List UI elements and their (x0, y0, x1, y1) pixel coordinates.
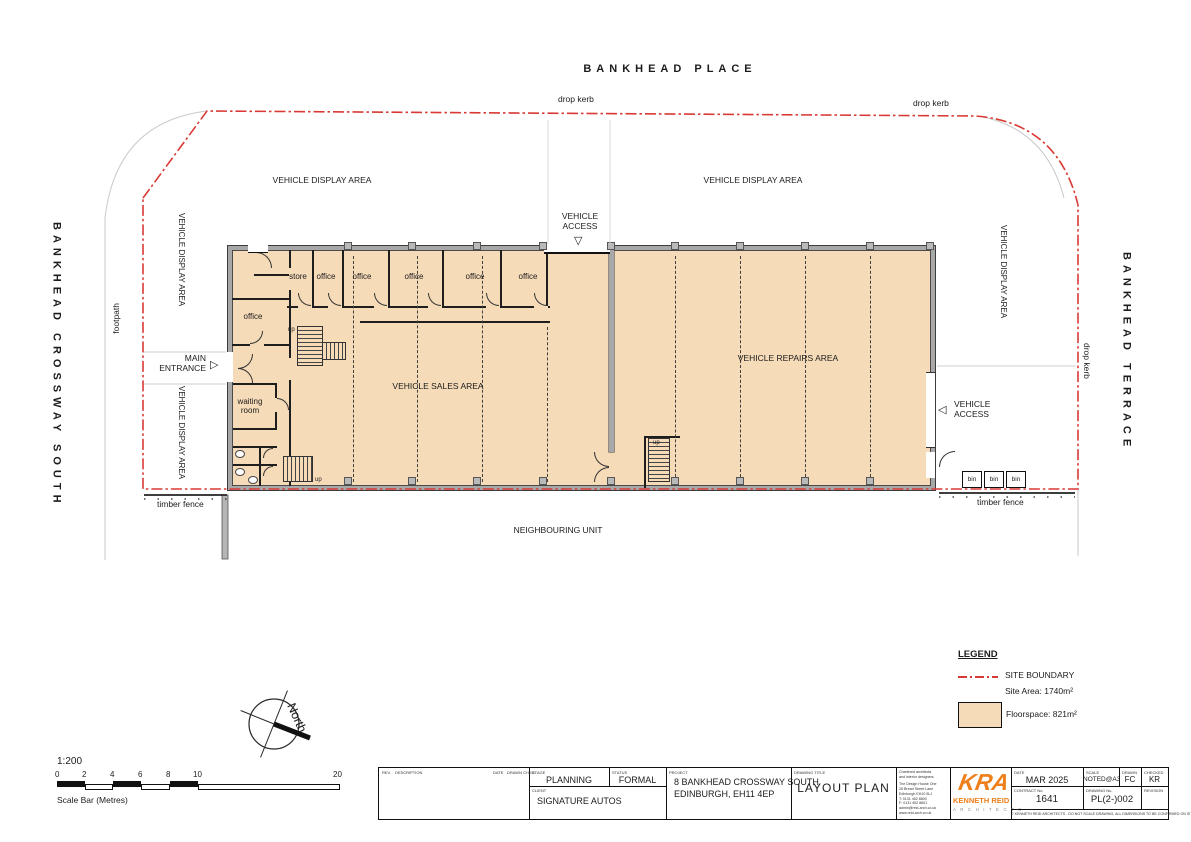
column-marker (926, 242, 934, 250)
legend-site-boundary-label: SITE BOUNDARY (1005, 671, 1074, 681)
contract-label: CONTRACT No. (1014, 788, 1043, 793)
legend-site-area: Site Area: 1740m² (1005, 687, 1073, 697)
door-gap (289, 358, 291, 380)
vehicle-access-label-right: VEHICLE ACCESS (954, 400, 990, 420)
neighbouring-unit-label: NEIGHBOURING UNIT (488, 526, 628, 536)
drawing-title: LAYOUT PLAN (791, 781, 896, 795)
door-arc (277, 398, 289, 410)
door-arc (486, 293, 499, 306)
door-arc (594, 452, 609, 467)
waiting-room-line1: waiting (229, 397, 271, 406)
room-label-office: office (306, 272, 346, 281)
column-marker (607, 242, 615, 250)
checked-value: KR (1141, 775, 1168, 784)
wall-waiting (233, 428, 277, 430)
vehicle-display-area-label: VEHICLE DISPLAY AREA (999, 225, 1008, 318)
scale-tick: 2 (82, 770, 86, 779)
vehicle-repairs-area-label: VEHICLE REPAIRS AREA (714, 354, 862, 364)
wc-fixture (235, 468, 245, 476)
legend-boundary-sample (958, 676, 998, 678)
scale-label: SCALE (1086, 770, 1099, 775)
door-arc (374, 293, 387, 306)
stairs (322, 342, 346, 360)
legend-floorspace: Floorspace: 821m² (1006, 710, 1077, 720)
scale-bar-segment (113, 781, 141, 787)
wall-office-annex (232, 298, 289, 300)
door-gap (534, 306, 548, 308)
scale-bar-segment (170, 781, 198, 787)
vehicle-sales-area-label: VEHICLE SALES AREA (364, 382, 512, 392)
north-compass (230, 682, 324, 768)
drawn-value: FC (1119, 775, 1141, 784)
door-gap (298, 306, 312, 308)
vehicle-display-area-label: VEHICLE DISPLAY AREA (177, 386, 186, 479)
wall-partition (609, 250, 614, 452)
scale-ratio: 1:200 (57, 756, 82, 768)
wall-wc (259, 446, 261, 486)
column-marker (607, 477, 615, 485)
room-label-waiting: waiting room (229, 397, 271, 415)
revision-label: REVISION (1144, 788, 1163, 793)
titleblock-divider (950, 768, 951, 819)
door-arc (238, 354, 253, 369)
stairs-up-label: up (288, 327, 295, 334)
timber-fence-label: timber fence (157, 500, 204, 510)
date-value: MAR 2025 (1011, 775, 1083, 785)
legend-floorspace-swatch (958, 702, 1002, 728)
room-label-office: office (342, 272, 382, 281)
vehicle-access-label-top: VEHICLE ACCESS (545, 212, 615, 232)
wall-stair (644, 436, 646, 488)
column-marker (801, 242, 809, 250)
scale-bar (57, 781, 340, 793)
vehicle-door-opening (926, 372, 935, 448)
drop-kerb-label: drop kerb (913, 99, 949, 109)
scale-bar-segment (141, 784, 170, 790)
north-label: North (284, 701, 309, 735)
bin-store: bin (984, 471, 1004, 488)
lobby-door-opening (248, 244, 268, 253)
scale-tick: 4 (110, 770, 114, 779)
company-line: www.reid-arch.co.uk (899, 811, 937, 816)
project-line2: EDINBURGH, EH11 4EP (674, 789, 774, 799)
scale-bar-segment (198, 784, 340, 790)
kerb-curve-right (978, 116, 1064, 198)
logo-name: KENNETH REID (953, 796, 1009, 805)
titleblock-divider (896, 768, 897, 819)
company-info: Chartered architects and interior design… (899, 770, 937, 815)
column-marker (736, 477, 744, 485)
scale-value: NOTED@A3 (1083, 776, 1119, 783)
bin-store: bin (1006, 471, 1026, 488)
column-marker (539, 242, 547, 250)
scale-tick: 20 (333, 770, 342, 779)
stage-value: PLANNING (529, 775, 609, 785)
door-arc (298, 293, 311, 306)
stairs (297, 326, 323, 366)
door-arc (428, 293, 441, 306)
client-label: CLIENT (532, 788, 546, 793)
wall-divider (500, 250, 502, 306)
wall-waiting (233, 383, 277, 385)
column-marker (736, 242, 744, 250)
stairs-up-label: up (315, 477, 322, 484)
company-line: Chartered architects (899, 770, 937, 775)
wall-office-row (287, 306, 550, 308)
grid-line (675, 256, 676, 482)
copyright-note: © KENNETH REID ARCHITECTS - DO NOT SCALE… (1011, 812, 1168, 817)
drawing-no-label: DRAWING No. (1086, 788, 1113, 793)
scale-tick: 10 (193, 770, 202, 779)
column-marker (671, 242, 679, 250)
scale-tick: 0 (55, 770, 59, 779)
arrow-left-icon: ◁ (938, 405, 946, 416)
door-gap (328, 306, 342, 308)
column-marker (344, 242, 352, 250)
column-marker (801, 477, 809, 485)
grid-line (547, 327, 548, 482)
stairs-up-label: up (653, 440, 660, 447)
drop-kerb-label: drop kerb (558, 95, 594, 105)
vehicle-display-area-label: VEHICLE DISPLAY AREA (685, 176, 821, 186)
grid-line (805, 256, 806, 482)
footpath-label: footpath (112, 303, 122, 334)
street-name-top: BANKHEAD PLACE (540, 63, 800, 76)
door-arc (263, 448, 273, 458)
main-entrance-line2: ENTRANCE (152, 364, 206, 374)
door-gap (250, 344, 264, 346)
door-arc (328, 293, 341, 306)
legend-title: LEGEND (958, 650, 998, 661)
room-label-office: office (455, 272, 495, 281)
column-marker (539, 477, 547, 485)
drawing-title-label: DRAWING TITLE (794, 770, 825, 775)
room-label-office: office (233, 312, 273, 321)
grid-line (740, 256, 741, 482)
project-label: PROJECT (669, 770, 688, 775)
door-arc (263, 466, 273, 476)
street-name-left: BANKHEAD CROSSWAY SOUTH (50, 222, 63, 508)
vehicle-access-line2: ACCESS (545, 222, 615, 232)
titleblock-divider (666, 768, 667, 819)
door-gap (374, 306, 388, 308)
door-arc (534, 293, 547, 306)
scale-bar-segment (57, 781, 85, 787)
column-marker (344, 477, 352, 485)
door-arc (238, 368, 253, 383)
wall-divider (388, 250, 390, 306)
door-arc (256, 252, 272, 268)
vehicle-display-area-label: VEHICLE DISPLAY AREA (177, 213, 186, 306)
room-label-office: office (394, 272, 434, 281)
neighbour-wall (222, 495, 228, 559)
rear-door-opening (926, 452, 935, 478)
rev-header: REV. (382, 770, 391, 775)
arrow-right-icon: ▷ (210, 360, 218, 371)
door-gap (486, 306, 500, 308)
column-marker (866, 242, 874, 250)
status-value: FORMAL (609, 775, 666, 785)
grid-line (353, 256, 354, 482)
arrow-down-icon: ▽ (574, 236, 582, 247)
room-label-office: office (508, 272, 548, 281)
client-value: SIGNATURE AUTOS (537, 796, 622, 806)
scale-bar-caption: Scale Bar (Metres) (57, 796, 128, 806)
kra-logo: KRA (957, 769, 1012, 796)
street-name-right: BANKHEAD TERRACE (1120, 252, 1133, 451)
building-footprint (228, 246, 935, 490)
drawing-no-value: PL(2-)002 (1083, 794, 1141, 805)
column-marker (866, 477, 874, 485)
wc-fixture (235, 450, 245, 458)
door-arc (250, 331, 263, 344)
kerb-curve-left (105, 111, 207, 560)
bin-store: bin (962, 471, 982, 488)
wall-corridor (360, 321, 550, 323)
door-gap (428, 306, 442, 308)
scale-bar-segment (85, 784, 113, 790)
company-line: Edinburgh EH10 5LJ (899, 792, 937, 797)
titleblock-divider (1011, 809, 1168, 810)
main-entrance-label: MAIN ENTRANCE (152, 354, 206, 374)
waiting-room-line2: room (229, 406, 271, 415)
wc-fixture (248, 476, 258, 484)
scale-tick: 8 (166, 770, 170, 779)
column-marker (473, 242, 481, 250)
main-entrance-opening (227, 352, 233, 382)
contract-value: 1641 (1011, 794, 1083, 805)
description-header: DESCRIPTION (395, 770, 422, 775)
scale-tick: 6 (138, 770, 142, 779)
vehicle-access-line2: ACCESS (954, 410, 990, 420)
grid-line (870, 256, 871, 482)
title-block: REV. DESCRIPTION DATE DRAWN CHKD. STAGE … (378, 767, 1169, 820)
column-marker (408, 242, 416, 250)
door-arc (939, 451, 955, 467)
stairs (283, 456, 313, 482)
vehicle-display-area-label: VEHICLE DISPLAY AREA (254, 176, 390, 186)
company-line: and interior designers (899, 775, 937, 780)
company-line: admin@reid-arch.co.uk (899, 806, 937, 811)
column-marker (671, 477, 679, 485)
titleblock-divider (1011, 786, 1168, 787)
drop-kerb-label: drop kerb (1081, 343, 1091, 379)
wall-divider (442, 250, 444, 306)
date-col-header: DATE (493, 770, 503, 775)
column-marker (408, 477, 416, 485)
grid-line (482, 256, 483, 482)
timber-fence-label: timber fence (977, 498, 1024, 508)
titleblock-divider (529, 786, 666, 787)
column-marker (473, 477, 481, 485)
grid-line (417, 256, 418, 482)
